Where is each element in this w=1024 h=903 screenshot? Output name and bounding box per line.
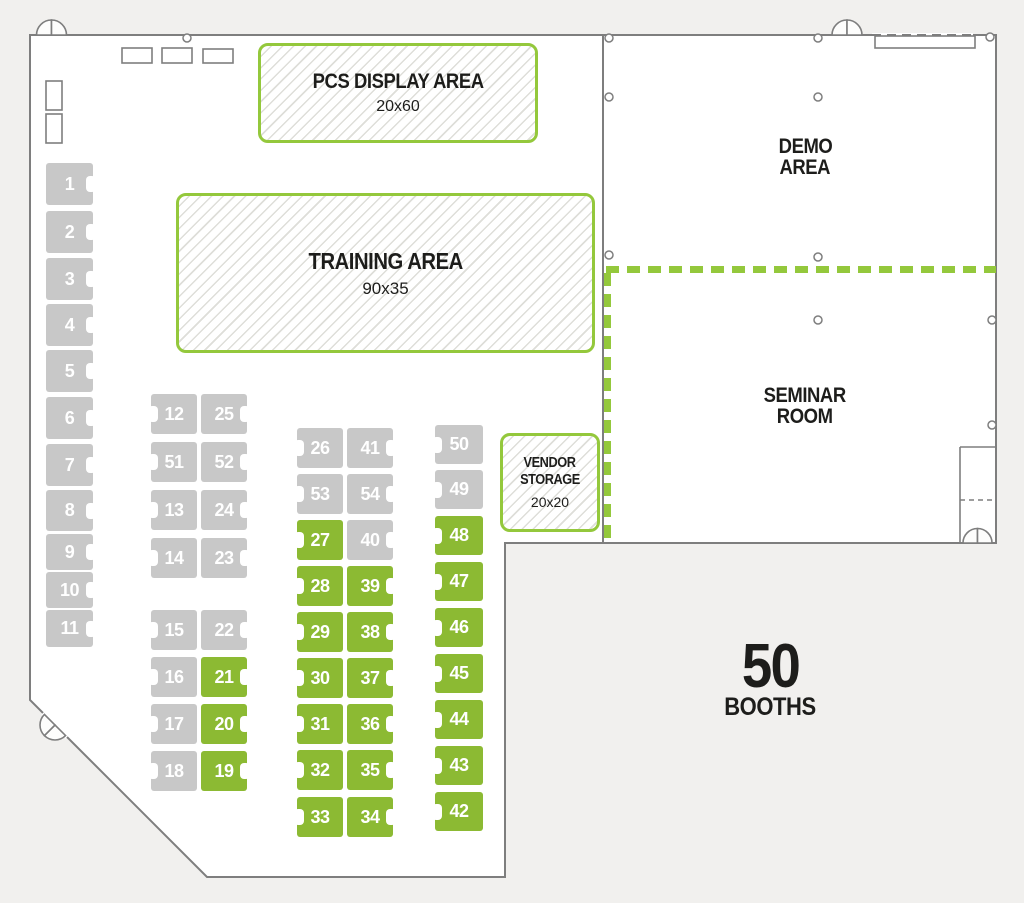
booth-number: 53 (310, 484, 329, 505)
booth-entrance-notch (86, 457, 96, 473)
booth-number: 2 (65, 222, 75, 243)
booth-34[interactable]: 34 (347, 797, 393, 837)
booth-entrance-notch (86, 582, 96, 598)
booth-number: 35 (360, 760, 379, 781)
booth-number: 22 (214, 620, 233, 641)
booth-entrance-notch (294, 486, 304, 502)
column (605, 34, 613, 42)
booth-6[interactable]: 6 (46, 397, 93, 439)
booth-number: 54 (360, 484, 379, 505)
booth-45[interactable]: 45 (435, 654, 483, 693)
column (814, 93, 822, 101)
booth-number: 12 (164, 404, 183, 425)
booth-number: 16 (164, 667, 183, 688)
booth-entrance-notch (432, 437, 442, 453)
booth-23[interactable]: 23 (201, 538, 247, 578)
booth-1[interactable]: 1 (46, 163, 93, 205)
column (988, 421, 996, 429)
booth-number: 1 (65, 174, 75, 195)
booth-entrance-notch (432, 620, 442, 636)
booth-16[interactable]: 16 (151, 657, 197, 697)
booth-9[interactable]: 9 (46, 534, 93, 570)
booth-42[interactable]: 42 (435, 792, 483, 831)
booth-54[interactable]: 54 (347, 474, 393, 514)
booth-entrance-notch (386, 440, 396, 456)
booth-number: 19 (214, 761, 233, 782)
vendor-storage-size: 20x20 (531, 494, 569, 510)
booth-5[interactable]: 5 (46, 350, 93, 392)
booth-number: 34 (360, 807, 379, 828)
booth-number: 17 (164, 714, 183, 735)
seminar-partition-dashed-line-vertical (604, 273, 611, 540)
booth-47[interactable]: 47 (435, 562, 483, 601)
booth-43[interactable]: 43 (435, 746, 483, 785)
table-top-1 (122, 48, 152, 63)
table-left-2 (46, 114, 62, 143)
booth-count-number: 50 (695, 638, 845, 695)
booth-number: 52 (214, 452, 233, 473)
booth-entrance-notch (294, 809, 304, 825)
booth-30[interactable]: 30 (297, 658, 343, 698)
door-top-right (832, 20, 862, 35)
booth-41[interactable]: 41 (347, 428, 393, 468)
booth-entrance-notch (386, 624, 396, 640)
booth-number: 25 (214, 404, 233, 425)
booth-40[interactable]: 40 (347, 520, 393, 560)
booth-4[interactable]: 4 (46, 304, 93, 346)
booth-entrance-notch (240, 454, 250, 470)
booth-32[interactable]: 32 (297, 750, 343, 790)
booth-number: 6 (65, 408, 75, 429)
booth-46[interactable]: 46 (435, 608, 483, 647)
booth-11[interactable]: 11 (46, 610, 93, 647)
booth-entrance-notch (86, 224, 96, 240)
booth-number: 20 (214, 714, 233, 735)
booth-38[interactable]: 38 (347, 612, 393, 652)
booth-48[interactable]: 48 (435, 516, 483, 555)
booth-7[interactable]: 7 (46, 444, 93, 486)
column (814, 34, 822, 42)
booth-entrance-notch (86, 363, 96, 379)
booth-number: 14 (164, 548, 183, 569)
booth-number: 46 (449, 617, 468, 638)
column (988, 316, 996, 324)
booth-entrance-notch (240, 550, 250, 566)
booth-50[interactable]: 50 (435, 425, 483, 464)
booth-number: 44 (449, 709, 468, 730)
booth-entrance-notch (294, 670, 304, 686)
booth-21[interactable]: 21 (201, 657, 247, 697)
booth-number: 26 (310, 438, 329, 459)
booth-entrance-notch (240, 669, 250, 685)
booth-entrance-notch (432, 574, 442, 590)
booth-entrance-notch (294, 762, 304, 778)
booth-number: 45 (449, 663, 468, 684)
booth-entrance-notch (432, 482, 442, 498)
booth-entrance-notch (294, 624, 304, 640)
booth-44[interactable]: 44 (435, 700, 483, 739)
column (814, 253, 822, 261)
booth-49[interactable]: 49 (435, 470, 483, 509)
booth-number: 3 (65, 269, 75, 290)
booth-entrance-notch (386, 716, 396, 732)
booth-entrance-notch (294, 716, 304, 732)
booth-number: 7 (65, 455, 75, 476)
pcs-display-area-title: PCS DISPLAY AREA (301, 70, 495, 94)
booth-entrance-notch (386, 578, 396, 594)
booth-entrance-notch (86, 271, 96, 287)
booth-entrance-notch (386, 809, 396, 825)
booth-18[interactable]: 18 (151, 751, 197, 791)
seminar-partition-dashed-line-horizontal (606, 266, 996, 273)
booth-entrance-notch (386, 670, 396, 686)
vendor-storage-title: VENDOR STORAGE (516, 455, 584, 490)
booth-number: 29 (310, 622, 329, 643)
booth-number: 9 (65, 542, 75, 563)
booth-20[interactable]: 20 (201, 704, 247, 744)
booth-entrance-notch (432, 712, 442, 728)
booth-number: 5 (65, 361, 75, 382)
booth-35[interactable]: 35 (347, 750, 393, 790)
booth-entrance-notch (240, 622, 250, 638)
booth-24[interactable]: 24 (201, 490, 247, 530)
booth-number: 33 (310, 807, 329, 828)
counter-top-right (875, 36, 975, 48)
booth-entrance-notch (148, 716, 158, 732)
booth-number: 15 (164, 620, 183, 641)
booth-entrance-notch (86, 621, 96, 637)
booth-entrance-notch (386, 486, 396, 502)
table-top-2 (162, 48, 192, 63)
booth-number: 47 (449, 571, 468, 592)
booth-number: 40 (360, 530, 379, 551)
booth-17[interactable]: 17 (151, 704, 197, 744)
booth-entrance-notch (148, 763, 158, 779)
booth-number: 18 (164, 761, 183, 782)
booth-number: 4 (65, 315, 75, 336)
demo-area-label: DEMO AREA (740, 136, 870, 178)
booth-entrance-notch (86, 410, 96, 426)
booth-number: 28 (310, 576, 329, 597)
booth-entrance-notch (148, 406, 158, 422)
booth-entrance-notch (386, 762, 396, 778)
booth-count-label: BOOTHS (695, 695, 845, 720)
booth-number: 43 (449, 755, 468, 776)
booth-entrance-notch (148, 454, 158, 470)
training-area: TRAINING AREA 90x35 (176, 193, 595, 353)
booth-entrance-notch (432, 758, 442, 774)
booth-number: 32 (310, 760, 329, 781)
booth-26[interactable]: 26 (297, 428, 343, 468)
booth-number: 41 (360, 438, 379, 459)
booth-entrance-notch (294, 440, 304, 456)
booth-3[interactable]: 3 (46, 258, 93, 300)
booth-number: 39 (360, 576, 379, 597)
booth-entrance-notch (240, 763, 250, 779)
column (183, 34, 191, 42)
booth-entrance-notch (240, 406, 250, 422)
booth-number: 30 (310, 668, 329, 689)
booth-number: 50 (449, 434, 468, 455)
booth-entrance-notch (86, 317, 96, 333)
column (605, 251, 613, 259)
booth-number: 48 (449, 525, 468, 546)
table-left-1 (46, 81, 62, 110)
booth-25[interactable]: 25 (201, 394, 247, 434)
booth-number: 11 (60, 618, 78, 639)
booth-number: 24 (214, 500, 233, 521)
seminar-room-label: SEMINAR ROOM (740, 385, 870, 427)
training-area-title: TRAINING AREA (298, 248, 473, 275)
booth-entrance-notch (240, 716, 250, 732)
booth-entrance-notch (432, 804, 442, 820)
booth-14[interactable]: 14 (151, 538, 197, 578)
booth-number: 37 (360, 668, 379, 689)
training-area-size: 90x35 (362, 279, 408, 299)
booth-entrance-notch (86, 544, 96, 560)
booth-entrance-notch (386, 532, 396, 548)
booth-number: 8 (65, 500, 75, 521)
column (605, 93, 613, 101)
pcs-display-area: PCS DISPLAY AREA 20x60 (258, 43, 538, 143)
booth-12[interactable]: 12 (151, 394, 197, 434)
booth-19[interactable]: 19 (201, 751, 247, 791)
booth-22[interactable]: 22 (201, 610, 247, 650)
column (814, 316, 822, 324)
booth-entrance-notch (240, 502, 250, 518)
booth-13[interactable]: 13 (151, 490, 197, 530)
booth-28[interactable]: 28 (297, 566, 343, 606)
booth-number: 49 (449, 479, 468, 500)
booth-27[interactable]: 27 (297, 520, 343, 560)
booth-36[interactable]: 36 (347, 704, 393, 744)
booth-entrance-notch (432, 666, 442, 682)
booth-53[interactable]: 53 (297, 474, 343, 514)
booth-count: 50 BOOTHS (695, 638, 845, 720)
booth-number: 31 (310, 714, 329, 735)
booth-number: 13 (164, 500, 183, 521)
booth-33[interactable]: 33 (297, 797, 343, 837)
booth-entrance-notch (86, 176, 96, 192)
door-top-left (37, 20, 67, 35)
column (986, 33, 994, 41)
booth-entrance-notch (148, 550, 158, 566)
booth-52[interactable]: 52 (201, 442, 247, 482)
booth-number: 21 (214, 667, 233, 688)
booth-entrance-notch (86, 503, 96, 519)
booth-2[interactable]: 2 (46, 211, 93, 253)
booth-number: 27 (310, 530, 329, 551)
vendor-storage-area: VENDOR STORAGE 20x20 (500, 433, 600, 532)
booth-37[interactable]: 37 (347, 658, 393, 698)
booth-29[interactable]: 29 (297, 612, 343, 652)
booth-entrance-notch (148, 669, 158, 685)
booth-8[interactable]: 8 (46, 490, 93, 531)
pcs-display-area-size: 20x60 (376, 98, 420, 116)
booth-number: 10 (60, 580, 79, 601)
booth-51[interactable]: 51 (151, 442, 197, 482)
booth-entrance-notch (148, 502, 158, 518)
floor-plan: PCS DISPLAY AREA 20x60 TRAINING AREA 90x… (0, 0, 1024, 903)
booth-number: 51 (164, 452, 183, 473)
booth-31[interactable]: 31 (297, 704, 343, 744)
booth-number: 23 (214, 548, 233, 569)
booth-number: 38 (360, 622, 379, 643)
booth-entrance-notch (148, 622, 158, 638)
booth-number: 36 (360, 714, 379, 735)
booth-15[interactable]: 15 (151, 610, 197, 650)
booth-10[interactable]: 10 (46, 572, 93, 608)
booth-entrance-notch (294, 578, 304, 594)
booth-entrance-notch (294, 532, 304, 548)
booth-number: 42 (449, 801, 468, 822)
table-top-3 (203, 49, 233, 63)
booth-entrance-notch (432, 528, 442, 544)
booth-39[interactable]: 39 (347, 566, 393, 606)
